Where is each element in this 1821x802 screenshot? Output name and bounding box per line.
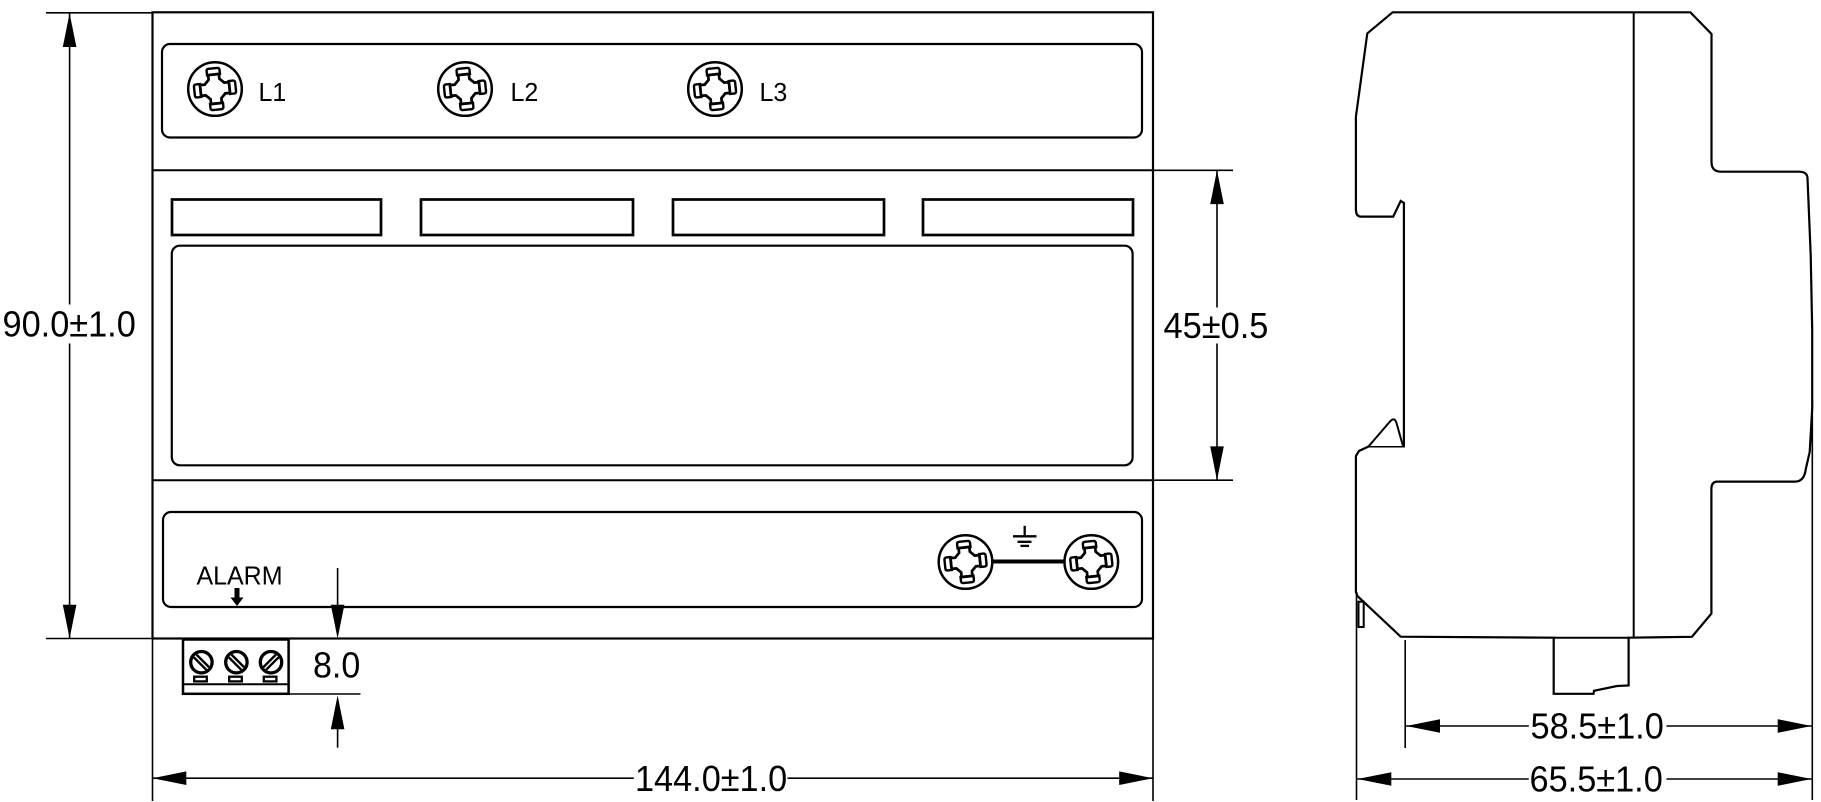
svg-text:8.0: 8.0 xyxy=(313,646,360,686)
svg-text:L2: L2 xyxy=(511,77,539,107)
svg-text:45±0.5: 45±0.5 xyxy=(1164,306,1269,346)
svg-text:L3: L3 xyxy=(760,77,788,107)
svg-text:90.0±1.0: 90.0±1.0 xyxy=(3,304,136,344)
svg-text:L1: L1 xyxy=(259,77,287,107)
svg-text:144.0±1.0: 144.0±1.0 xyxy=(635,759,787,799)
svg-text:58.5±1.0: 58.5±1.0 xyxy=(1531,706,1664,746)
svg-text:65.5±1.0: 65.5±1.0 xyxy=(1530,759,1663,799)
svg-text:ALARM: ALARM xyxy=(197,561,283,591)
